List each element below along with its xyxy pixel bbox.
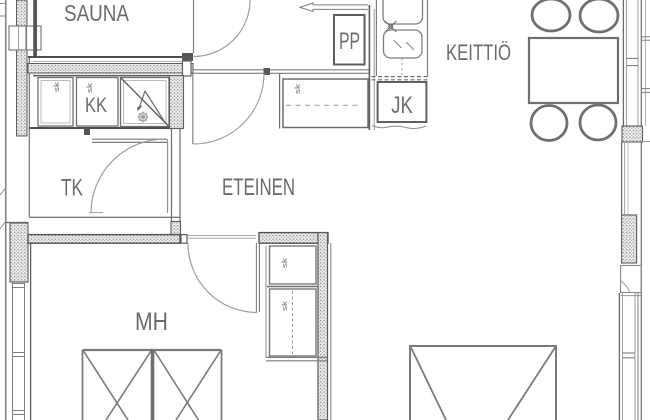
svg-text:KK: KK [85,94,107,117]
svg-text:TK: TK [61,175,83,202]
svg-text:sk: sk [54,81,61,92]
svg-text:ETEINEN: ETEINEN [222,174,295,201]
svg-text:sk: sk [282,257,289,268]
svg-text:JK: JK [391,92,413,119]
svg-text:KEITTIÖ: KEITTIÖ [446,40,511,65]
svg-text:sk: sk [295,83,302,94]
svg-text:sk: sk [282,300,289,311]
svg-text:SAUNA: SAUNA [64,0,130,26]
svg-text:MH: MH [135,308,168,336]
svg-text:PP: PP [339,29,360,55]
svg-text:sk: sk [87,82,94,93]
